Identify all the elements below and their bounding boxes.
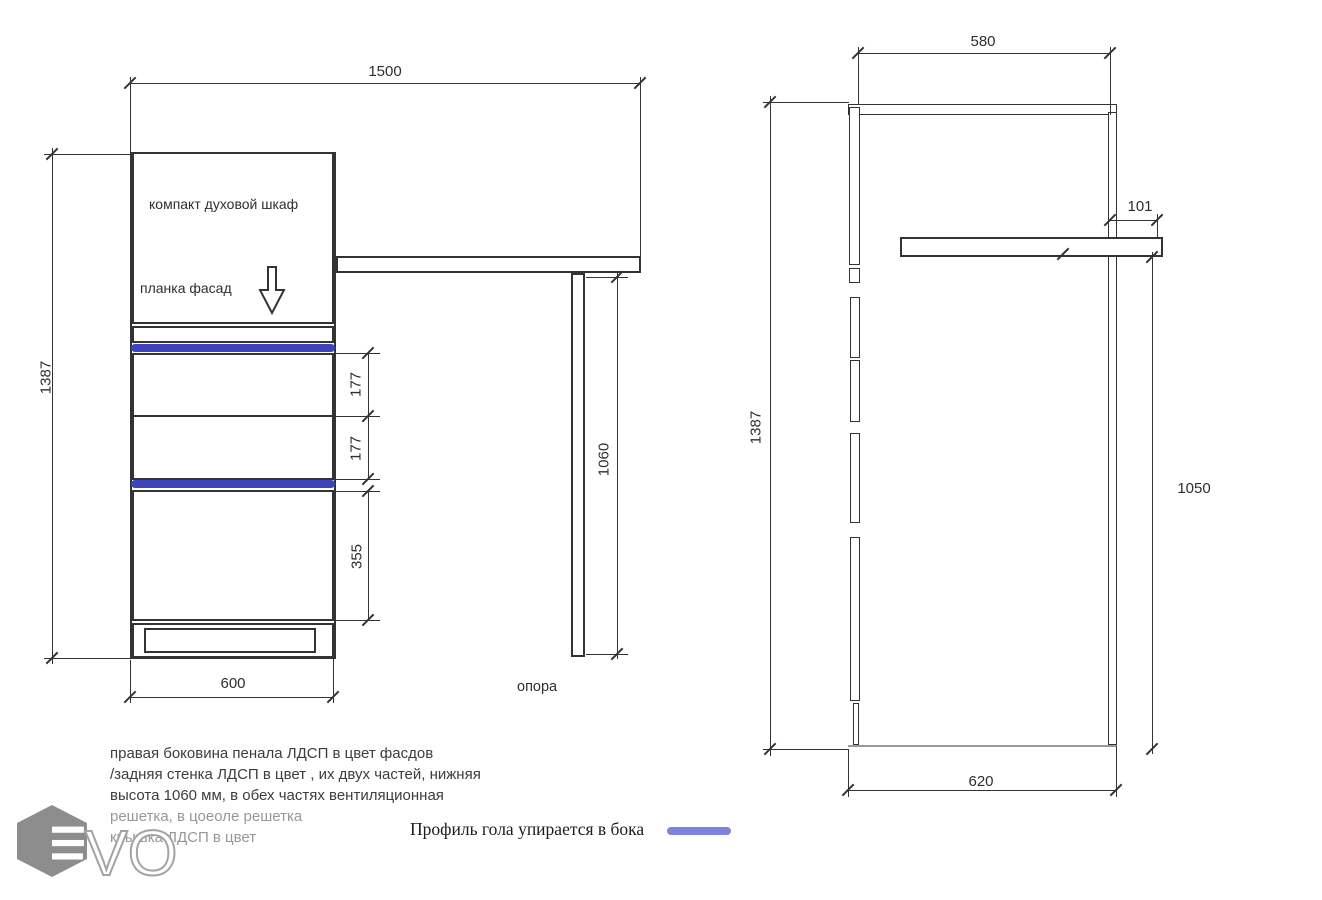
- drawer-1: [132, 353, 334, 417]
- back-panel-segment: [849, 107, 860, 265]
- dim-line: [130, 697, 333, 698]
- dim-right-height: 1050: [1164, 480, 1224, 497]
- note-line: высота 1060 мм, в обех частях вентиляцио…: [110, 787, 444, 804]
- lower-door: [132, 490, 334, 621]
- extension-line: [336, 353, 380, 354]
- dim-line: [52, 148, 53, 664]
- extension-line: [586, 277, 628, 278]
- dim-base-width: 600: [203, 675, 263, 692]
- technical-drawing-page: компакт духовой шкаф планка фасад опора …: [0, 0, 1322, 900]
- dim-line: [1110, 220, 1157, 221]
- plank-band: [132, 326, 334, 343]
- back-panel-segment: [850, 433, 860, 523]
- dim-line: [858, 53, 1110, 54]
- dim-drawer-1: 177: [348, 365, 365, 405]
- dim-top-depth: 580: [953, 33, 1013, 50]
- dim-line: [1152, 252, 1153, 754]
- oven-compartment: [132, 152, 334, 324]
- oven-label: компакт духовой шкаф: [149, 196, 298, 212]
- back-panel-segment: [849, 268, 860, 283]
- extension-line: [640, 77, 641, 256]
- dim-total-width: 1500: [355, 63, 415, 80]
- extension-line: [44, 154, 130, 155]
- support-label: опора: [517, 679, 557, 695]
- legend-profile-line: [667, 827, 731, 835]
- extension-line: [763, 102, 849, 103]
- extension-line: [130, 77, 131, 152]
- plinth-vent-grille: [144, 628, 316, 653]
- extension-line: [336, 416, 380, 417]
- dim-worktop-overhang: 101: [1110, 198, 1170, 215]
- dim-drawer-2: 177: [348, 429, 365, 469]
- extension-line: [44, 658, 130, 659]
- dim-line: [770, 96, 771, 756]
- dim-lower-door: 355: [349, 537, 366, 577]
- extension-line: [336, 491, 380, 492]
- side-worktop: [900, 237, 1163, 257]
- drawer-2: [132, 415, 334, 480]
- logo-hexagon-icon: [17, 805, 87, 877]
- dim-line: [130, 83, 640, 84]
- extension-line: [1110, 47, 1111, 115]
- note-line: правая боковина пенала ЛДСП в цвет фасдо…: [110, 745, 433, 762]
- back-panel-segment: [850, 297, 860, 358]
- dim-total-height: 1387: [38, 358, 55, 398]
- back-panel-segment: [850, 360, 860, 422]
- down-arrow-icon: [258, 266, 286, 316]
- dim-line: [848, 790, 1116, 791]
- dim-line: [617, 272, 618, 659]
- legend-text: Профиль гола упирается в бока: [410, 819, 644, 840]
- dim-bottom-depth: 620: [951, 773, 1011, 790]
- back-panel-segment: [853, 703, 859, 745]
- worktop: [336, 256, 641, 273]
- extension-line: [586, 654, 628, 655]
- extension-line: [763, 749, 849, 750]
- back-panel-segment: [850, 537, 860, 701]
- evo-logo: VO: [17, 805, 192, 885]
- extension-line: [336, 479, 380, 480]
- extension-line: [858, 47, 859, 104]
- profile-bar-top: [131, 344, 335, 352]
- profile-bar-bottom: [131, 480, 335, 488]
- plank-facade-label: планка фасад: [140, 280, 232, 296]
- side-bottom-edge: [848, 745, 1117, 747]
- side-top-panel: [848, 104, 1117, 115]
- extension-line: [336, 620, 380, 621]
- note-line: /задняя стенка ЛДСП в цвет , их двух час…: [110, 766, 481, 783]
- dim-support-height: 1060: [596, 440, 613, 480]
- logo-vo-text: VO: [85, 817, 177, 889]
- support-leg: [571, 273, 585, 657]
- dim-line: [368, 491, 369, 620]
- logo-vo-outline: VO: [83, 813, 188, 891]
- dim-side-total-height: 1387: [748, 408, 765, 448]
